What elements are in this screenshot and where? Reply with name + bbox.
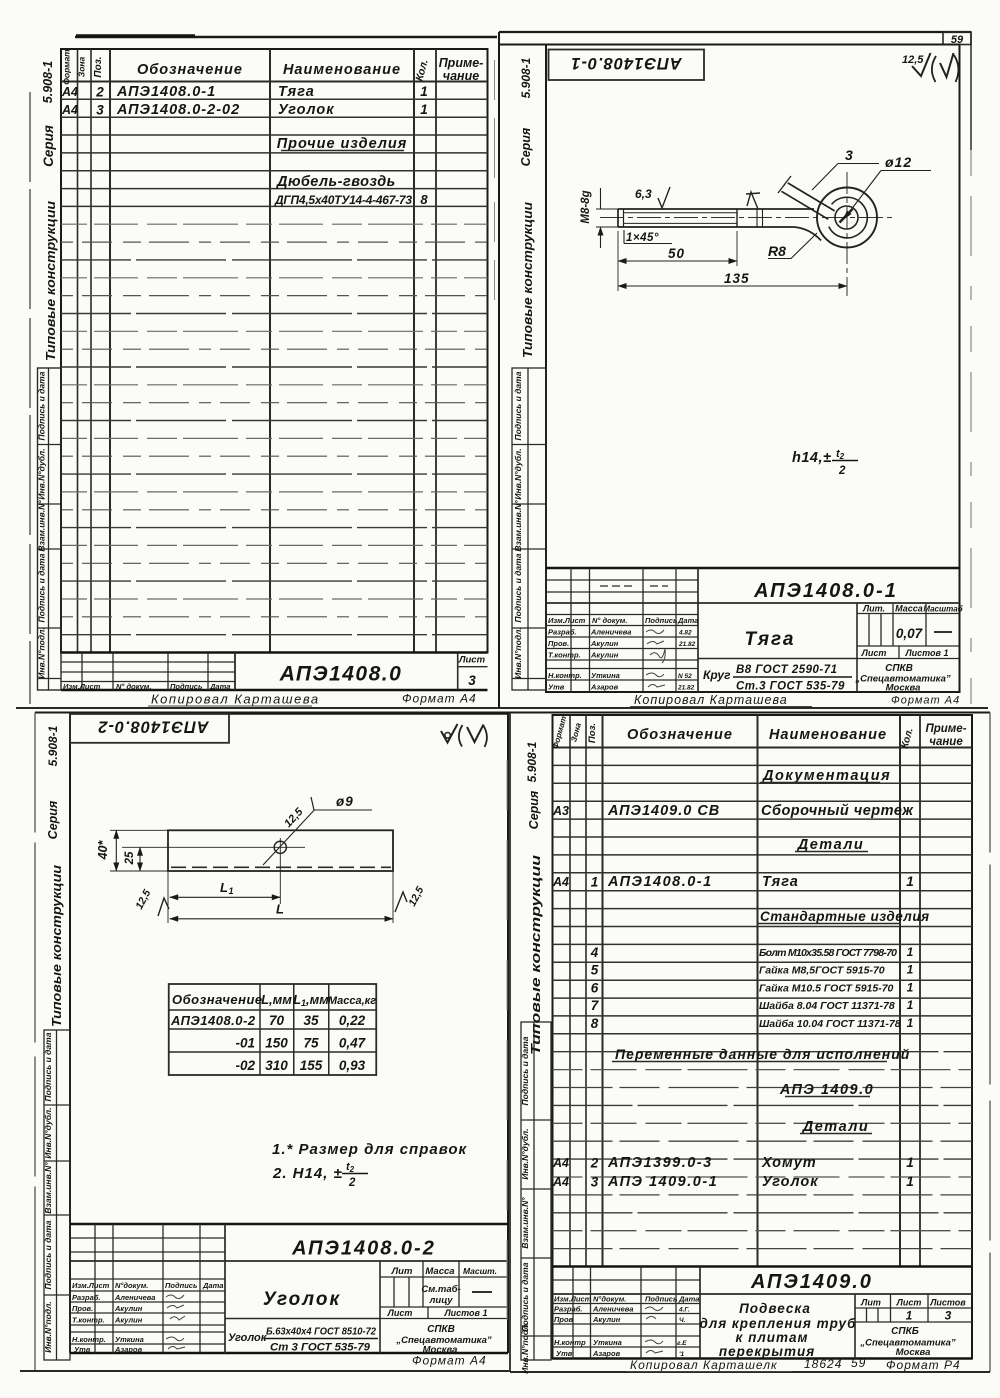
svg-text:Детали: Детали [796, 837, 865, 853]
svg-text:ø9: ø9 [336, 794, 354, 809]
svg-text:Уткина: Уткина [593, 1338, 622, 1347]
svg-text:Типовые конструкции: Типовые конструкции [44, 201, 58, 361]
svg-text:Масштаб: Масштаб [923, 605, 963, 614]
svg-text:СПКБ: СПКБ [891, 1326, 919, 1337]
svg-text:АПЭ1408.0-1: АПЭ1408.0-1 [570, 54, 682, 72]
svg-text:Обозначение: Обозначение [172, 992, 263, 1007]
svg-text:Кол.: Кол. [900, 727, 916, 750]
svg-text:12,5: 12,5 [133, 888, 153, 912]
svg-text:L1: L1 [220, 880, 234, 896]
svg-text:Взам.инв.N°: Взам.инв.N° [520, 1197, 530, 1249]
svg-text:5.908-1: 5.908-1 [41, 61, 55, 103]
svg-text:Наименование: Наименование [769, 727, 887, 743]
svg-text:Шайба 10.04 ГОСТ 11371-78: Шайба 10.04 ГОСТ 11371-78 [759, 1018, 901, 1030]
svg-text:ДГП4,5х40ТУ14-4-467-73: ДГП4,5х40ТУ14-4-467-73 [274, 193, 412, 207]
svg-text:Листов 1: Листов 1 [904, 648, 948, 658]
svg-text:Формат: Формат [62, 49, 72, 85]
svg-text:Утв: Утв [556, 1349, 573, 1358]
svg-text:12,5: 12,5 [902, 54, 924, 66]
svg-text:N° докум.: N° докум. [592, 616, 627, 625]
svg-text:Подпись и дата: Подпись и дата [520, 1036, 530, 1105]
svg-text:Формат: Формат [551, 715, 568, 750]
svg-text:5.908-1: 5.908-1 [519, 57, 533, 98]
svg-text:Пров.: Пров. [548, 639, 569, 648]
svg-text:Подпись и дата: Подпись и дата [37, 553, 47, 622]
svg-text:1: 1 [906, 874, 914, 889]
svg-text:В8 ГОСТ 2590-71: В8 ГОСТ 2590-71 [736, 664, 838, 676]
svg-text:0,22: 0,22 [339, 1013, 366, 1028]
svg-text:Т.контр.: Т.контр. [72, 1316, 105, 1325]
svg-text:N 52: N 52 [678, 673, 692, 680]
svg-text:Тяга: Тяга [278, 84, 315, 100]
svg-text:Уголок: Уголок [263, 1289, 341, 1310]
svg-text:Уголок: Уголок [278, 102, 335, 118]
svg-text:Детали: Детали [801, 1119, 870, 1135]
svg-text:АПЭ1408.0-1: АПЭ1408.0-1 [607, 874, 713, 890]
svg-text:Инв.N°дубл.: Инв.N°дубл. [43, 1107, 53, 1158]
svg-text:Ст.3 ГОСТ 535-79: Ст.3 ГОСТ 535-79 [736, 681, 845, 693]
svg-text:Лист: Лист [387, 1308, 413, 1318]
svg-text:Подпись и дата: Подпись и дата [513, 553, 523, 622]
svg-text:Инв.N°дубл.: Инв.N°дубл. [37, 448, 47, 499]
svg-text:Взам.инв.N°: Взам.инв.N° [43, 1162, 53, 1214]
svg-text:Серия: Серия [41, 125, 56, 167]
svg-text:135: 135 [724, 271, 750, 286]
svg-text:Изм.Лист: Изм.Лист [554, 1295, 592, 1304]
svg-text:Уголок: Уголок [762, 1174, 819, 1190]
svg-text:Подпись: Подпись [645, 616, 678, 625]
svg-text:Лист: Лист [861, 648, 887, 658]
svg-text:Уголок: Уголок [228, 1332, 268, 1344]
svg-text:Н.контр.: Н.контр. [72, 1335, 106, 1344]
svg-text:Подпись: Подпись [165, 1281, 198, 1290]
svg-text:Б.63х40х4 ГОСТ 8510-72: Б.63х40х4 ГОСТ 8510-72 [266, 1326, 376, 1338]
svg-text:t2: t2 [346, 1161, 355, 1174]
svg-text:Лит: Лит [860, 1298, 881, 1308]
svg-text:Подпись и дата: Подпись и дата [43, 1220, 53, 1289]
svg-text:Азаров: Азаров [114, 1345, 143, 1354]
svg-text:Подпись и дата: Подпись и дата [520, 1262, 530, 1331]
svg-text:1: 1 [906, 1174, 914, 1189]
svg-text:Подпись и дата: Подпись и дата [513, 371, 523, 440]
svg-text:АПЭ1409.0 СВ: АПЭ1409.0 СВ [607, 803, 720, 819]
svg-text:Переменные данные для исполне: Переменные данные для исполнений [615, 1046, 910, 1062]
svg-text:N°докум.: N°докум. [593, 1295, 626, 1304]
svg-text:35: 35 [303, 1013, 319, 1028]
svg-text:Тяга: Тяга [762, 874, 799, 890]
svg-text:1: 1 [420, 84, 428, 99]
svg-text:Разраб.: Разраб. [72, 1293, 100, 1302]
svg-text:Прочие изделия: Прочие изделия [277, 136, 408, 152]
svg-text:2: 2 [348, 1177, 356, 1189]
svg-text:0,47: 0,47 [339, 1036, 367, 1051]
svg-text:Круг: Круг [703, 668, 731, 682]
svg-text:Поз.: Поз. [587, 723, 598, 743]
svg-text:Подпись: Подпись [645, 1295, 678, 1304]
svg-text:Типовые конструкции: Типовые конструкции [50, 865, 64, 1027]
svg-text:Взам.инв.N°: Взам.инв.N° [513, 500, 523, 552]
svg-text:Изм.Лист: Изм.Лист [548, 616, 586, 625]
svg-text:Н.контр.: Н.контр. [548, 671, 582, 680]
svg-text:СПКВ: СПКВ [885, 663, 913, 674]
svg-text:5.908-1: 5.908-1 [46, 725, 60, 766]
svg-text:А4: А4 [552, 1175, 569, 1189]
svg-text:АПЭ1408.0-1: АПЭ1408.0-1 [116, 84, 216, 100]
svg-text:Изм.Лист: Изм.Лист [63, 682, 101, 691]
svg-text:Формат А4: Формат А4 [891, 695, 960, 707]
svg-text:Акулин: Акулин [114, 1316, 143, 1325]
svg-text:3: 3 [591, 1175, 599, 1190]
svg-text:21.82: 21.82 [678, 641, 696, 648]
svg-text:2: 2 [838, 465, 846, 477]
svg-text:Копировал Карташелк: Копировал Карташелк [630, 1358, 778, 1372]
svg-text:N° докум.: N° докум. [116, 682, 151, 691]
svg-text:3: 3 [96, 103, 104, 118]
svg-text:Аленичева: Аленичева [590, 628, 631, 637]
svg-text:Азаров: Азаров [590, 683, 619, 692]
svg-text:А4: А4 [61, 85, 78, 99]
svg-text:Уткина: Уткина [115, 1335, 144, 1344]
svg-text:8: 8 [420, 192, 428, 207]
svg-text:Подпись: Подпись [170, 682, 203, 691]
svg-text:Взам.инв.N°: Взам.инв.N° [37, 500, 47, 552]
svg-text:5: 5 [591, 963, 599, 978]
svg-text:АПЭ1408.0-2: АПЭ1408.0-2 [291, 1238, 436, 1260]
svg-text:Листов: Листов [929, 1298, 966, 1308]
svg-text:1: 1 [907, 998, 914, 1012]
svg-text:2: 2 [95, 85, 104, 100]
svg-text:Т.контр.: Т.контр. [548, 651, 581, 660]
svg-text:2: 2 [590, 1156, 599, 1171]
svg-text:Разраб.: Разраб. [548, 628, 576, 637]
svg-text:18624: 18624 [804, 1357, 842, 1371]
svg-text:Подпись и дата: Подпись и дата [37, 371, 47, 440]
svg-text:Акулин: Акулин [114, 1304, 143, 1313]
svg-text:Акулин: Акулин [590, 639, 619, 648]
svg-text:ø12: ø12 [885, 154, 912, 170]
svg-text:Инв.N°подл.: Инв.N°подл. [513, 627, 523, 679]
svg-text:АПЭ 1409.0: АПЭ 1409.0 [779, 1082, 874, 1098]
svg-text:Подвеска: Подвеска [739, 1301, 811, 1316]
svg-text:Обозначение: Обозначение [627, 727, 733, 743]
svg-text:Стандартные изделия: Стандартные изделия [760, 909, 930, 924]
svg-text:1: 1 [907, 981, 914, 995]
svg-text:0,93: 0,93 [339, 1058, 366, 1073]
svg-text:3: 3 [468, 673, 476, 688]
svg-text:-02: -02 [235, 1058, 255, 1073]
svg-text:70: 70 [269, 1013, 285, 1028]
svg-text:6: 6 [591, 981, 599, 996]
svg-text:5.908-1: 5.908-1 [525, 741, 539, 782]
svg-text:А4: А4 [552, 875, 569, 889]
svg-text:1: 1 [907, 963, 914, 977]
svg-text:R8: R8 [768, 243, 786, 259]
svg-text:Москва: Москва [886, 683, 921, 694]
svg-text:L1,мм: L1,мм [293, 992, 329, 1008]
svg-text:Серия: Серия [519, 127, 533, 166]
svg-text:Дата: Дата [678, 1295, 699, 1304]
svg-text:25: 25 [124, 851, 136, 865]
svg-text:40*: 40* [96, 839, 110, 860]
svg-text:1: 1 [907, 945, 914, 959]
svg-text:4.Г.: 4.Г. [678, 1307, 690, 1314]
svg-text:Уткина: Уткина [591, 671, 620, 680]
svg-text:Ч.: Ч. [679, 1317, 686, 1324]
svg-text:Разраб.: Разраб. [554, 1305, 582, 1314]
svg-text:12,5: 12,5 [282, 805, 306, 829]
svg-text:Акулин: Акулин [590, 651, 619, 660]
svg-text:Гайка М10.5 ГОСТ 5915-70: Гайка М10.5 ГОСТ 5915-70 [759, 983, 894, 995]
svg-text:А4: А4 [61, 103, 78, 117]
svg-text:Поз.: Поз. [93, 56, 104, 77]
svg-text:Шайба 8.04 ГОСТ 11371-78: Шайба 8.04 ГОСТ 11371-78 [759, 1000, 895, 1012]
svg-text:2. Н14, ±: 2. Н14, ± [272, 1165, 343, 1182]
svg-text:Дата: Дата [202, 1281, 223, 1290]
svg-text:Изм.Лист: Изм.Лист [72, 1281, 110, 1290]
svg-text:Формат А4: Формат А4 [412, 1354, 487, 1368]
svg-text:0,07: 0,07 [896, 626, 924, 641]
svg-text:Дата: Дата [209, 682, 230, 691]
svg-text:59: 59 [851, 1356, 866, 1370]
svg-text:чание: чание [443, 69, 479, 83]
svg-text:N°докум.: N°докум. [115, 1281, 148, 1290]
svg-text:Листов 1: Листов 1 [443, 1308, 487, 1318]
svg-text:Болт М10х35.58 ГОСТ 7798-70: Болт М10х35.58 ГОСТ 7798-70 [759, 947, 897, 959]
svg-text:1: 1 [591, 875, 599, 890]
svg-text:чание: чание [929, 736, 963, 748]
svg-text:310: 310 [265, 1058, 288, 1073]
svg-text:Масса: Масса [895, 604, 923, 614]
svg-text:1×45°: 1×45° [626, 232, 659, 244]
svg-text:Масшт.: Масшт. [463, 1266, 497, 1276]
svg-text:А4: А4 [552, 1156, 569, 1170]
svg-text:h14,±: h14,± [792, 450, 831, 466]
svg-text:Инв.N°подл.: Инв.N°подл. [520, 1322, 530, 1374]
svg-text:лицу: лицу [428, 1295, 453, 1306]
svg-text:7: 7 [591, 998, 600, 1013]
svg-text:для крепления труб: для крепления труб [699, 1316, 856, 1331]
svg-text:СПКВ: СПКВ [427, 1324, 455, 1335]
svg-text:См.таб-: См.таб- [421, 1284, 460, 1295]
svg-text:Документация: Документация [761, 768, 891, 784]
svg-text:Копировал Карташева: Копировал Карташева [151, 692, 320, 707]
svg-text:г.Е: г.Е [677, 1340, 687, 1347]
svg-text:75: 75 [303, 1036, 319, 1051]
svg-text:-01: -01 [235, 1036, 255, 1051]
svg-text:Москва: Москва [896, 1347, 931, 1358]
svg-text:Приме-: Приме- [925, 723, 966, 735]
svg-text:t2: t2 [836, 448, 845, 461]
svg-text:Зона: Зона [77, 56, 87, 77]
svg-text:Хомут: Хомут [761, 1155, 817, 1171]
svg-text:Обозначение: Обозначение [137, 62, 243, 78]
svg-text:1: 1 [420, 102, 428, 117]
svg-text:50: 50 [668, 246, 685, 261]
svg-text:1: 1 [906, 1309, 913, 1323]
svg-text:перекрытия: перекрытия [719, 1344, 815, 1359]
svg-text:М8-8g: М8-8g [580, 190, 592, 223]
svg-text:1: 1 [907, 1016, 914, 1030]
svg-text:3: 3 [845, 147, 853, 163]
svg-text:Аленичева: Аленичева [114, 1293, 155, 1302]
svg-text:Дюбель-гвоздь: Дюбель-гвоздь [275, 174, 396, 190]
svg-text:3: 3 [945, 1309, 952, 1323]
svg-text:Инв.N°подл.: Инв.N°подл. [37, 627, 47, 679]
svg-text:АПЭ1409.0: АПЭ1409.0 [750, 1271, 873, 1293]
svg-text:Формат А4: Формат А4 [402, 692, 477, 706]
svg-text:Инв.N°дубл.: Инв.N°дубл. [520, 1128, 530, 1179]
svg-text:Типовые конструкции: Типовые конструкции [521, 202, 535, 358]
svg-text:АПЭ1408.0: АПЭ1408.0 [279, 663, 403, 686]
svg-text:АПЭ1408.0-2: АПЭ1408.0-2 [97, 718, 209, 736]
svg-text:Утв: Утв [548, 683, 565, 692]
svg-text:Типовые конструкции: Типовые конструкции [529, 854, 543, 1055]
svg-text:6,3: 6,3 [635, 187, 652, 201]
svg-text:Аленичева: Аленичева [592, 1305, 633, 1314]
svg-text:155: 155 [300, 1058, 323, 1073]
svg-text:Наименование: Наименование [283, 62, 401, 78]
svg-text:Сборочный чертеж: Сборочный чертеж [761, 803, 914, 819]
svg-text:Н.контр: Н.контр [554, 1338, 586, 1347]
svg-text:1: 1 [906, 1155, 914, 1170]
svg-text:Зона: Зона [569, 721, 583, 743]
svg-text:L,мм: L,мм [261, 992, 292, 1007]
svg-text:Пров: Пров [554, 1315, 574, 1324]
svg-text:АПЭ1408.0-2-02: АПЭ1408.0-2-02 [116, 102, 240, 118]
svg-text:Лист: Лист [896, 1298, 922, 1308]
svg-text:Лит: Лит [391, 1266, 413, 1277]
svg-text:Кол.: Кол. [413, 58, 430, 82]
svg-text:8: 8 [591, 1016, 599, 1031]
svg-text:Гайка М8,5ГОСТ 5915-70: Гайка М8,5ГОСТ 5915-70 [759, 965, 885, 977]
svg-text:4: 4 [590, 945, 599, 960]
svg-text:АПЭ1399.0-3: АПЭ1399.0-3 [607, 1155, 713, 1171]
svg-text:АПЭ1408.0-2: АПЭ1408.0-2 [170, 1013, 256, 1028]
svg-text:Серия: Серия [46, 800, 60, 839]
svg-text:Ст 3 ГОСТ 535-79: Ст 3 ГОСТ 535-79 [270, 1342, 371, 1354]
svg-text:L: L [276, 902, 284, 917]
svg-text:Подпись и дата: Подпись и дата [43, 1032, 53, 1101]
svg-text:12,5: 12,5 [406, 885, 426, 909]
svg-text:Азаров: Азаров [592, 1349, 621, 1358]
svg-text:АПЭ1408.0-1: АПЭ1408.0-1 [753, 580, 898, 602]
svg-text:Пров.: Пров. [72, 1304, 93, 1313]
svg-text:Лист: Лист [458, 655, 486, 666]
svg-text:Дата: Дата [677, 616, 698, 625]
svg-text:'1: '1 [679, 1351, 685, 1358]
svg-text:Инв.N°подл.: Инв.N°подл. [43, 1301, 53, 1353]
svg-text:Тяга: Тяга [744, 629, 795, 650]
svg-text:Утв: Утв [74, 1345, 91, 1354]
svg-text:к плитам: к плитам [736, 1330, 809, 1345]
svg-text:Акулин: Акулин [592, 1315, 621, 1324]
svg-text:Лит.: Лит. [862, 604, 885, 614]
svg-text:150: 150 [265, 1036, 288, 1051]
svg-text:АПЭ 1409.0-1: АПЭ 1409.0-1 [607, 1174, 718, 1190]
svg-text:21.82: 21.82 [677, 685, 695, 692]
svg-text:Масса: Масса [425, 1266, 454, 1277]
svg-text:А3: А3 [552, 804, 569, 818]
svg-text:4.82: 4.82 [678, 630, 692, 637]
svg-text:Серия: Серия [527, 790, 541, 829]
svg-text:1.* Размер для справок: 1.* Размер для справок [272, 1141, 468, 1158]
svg-text:Инв.N°дубл.: Инв.N°дубл. [513, 448, 523, 499]
svg-text:Копировал Карташева: Копировал Карташева [634, 693, 788, 707]
svg-text:Приме-: Приме- [439, 56, 484, 70]
svg-text:Масса,кг: Масса,кг [328, 995, 376, 1007]
svg-text:Формат Р4: Формат Р4 [886, 1358, 961, 1372]
